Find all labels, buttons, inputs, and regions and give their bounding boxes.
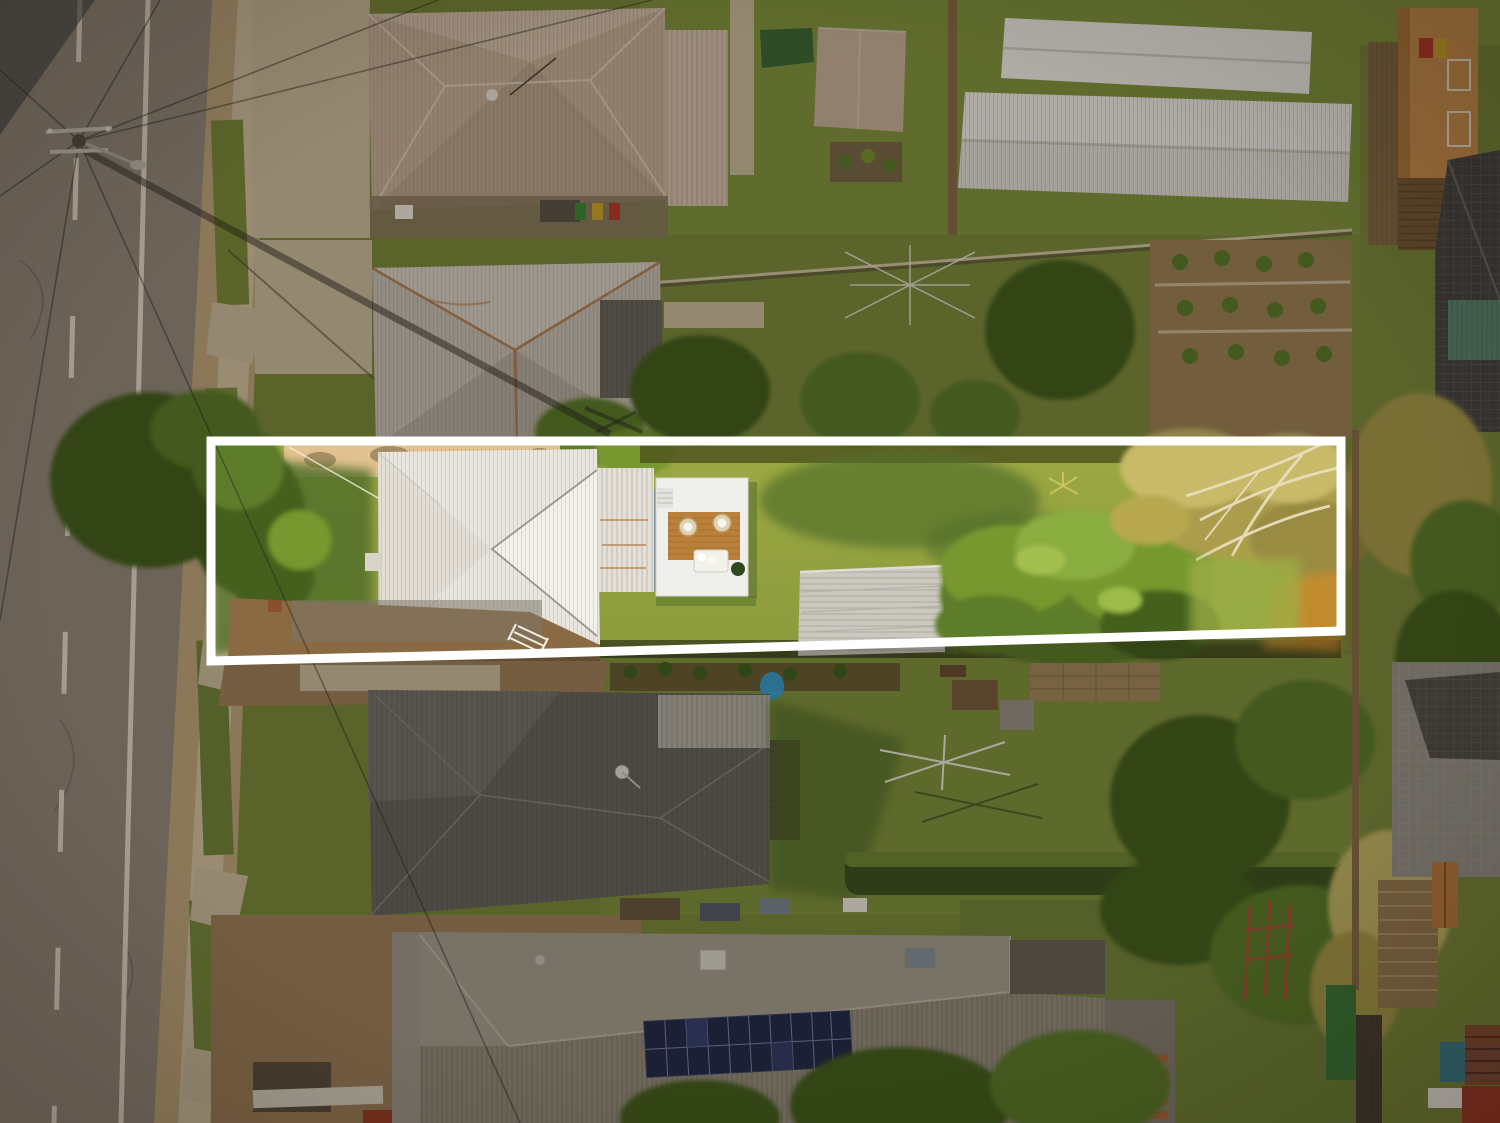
aerial-photo-canvas	[0, 0, 1500, 1123]
aerial-scene	[0, 0, 1500, 1123]
vignette	[0, 0, 1500, 1123]
